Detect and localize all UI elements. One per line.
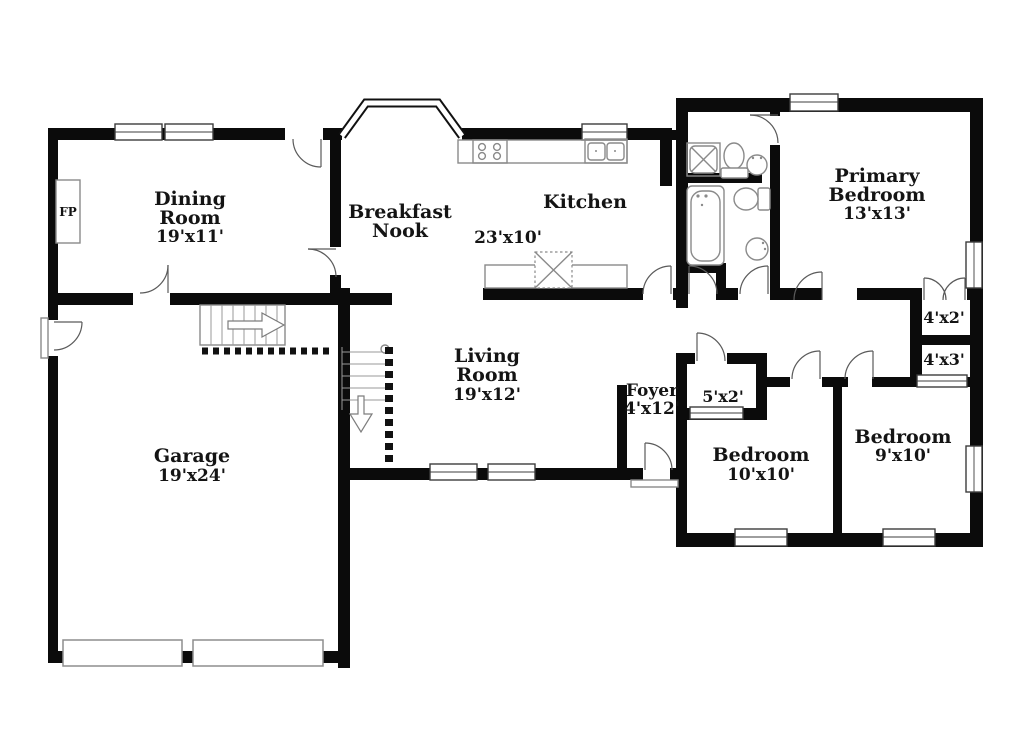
- door: [643, 266, 671, 294]
- door: [697, 333, 725, 361]
- closet-dims-4x2: 4'x2': [923, 308, 965, 327]
- bathroom-fixtures: [687, 143, 770, 265]
- door: [750, 115, 778, 143]
- stove-icon: [473, 140, 507, 163]
- window: [165, 124, 213, 140]
- room-dims-living: 19'x12': [453, 385, 521, 405]
- room-label-primary-2: Bedroom: [829, 184, 926, 206]
- side-door-threshold: [41, 318, 48, 358]
- room-label-foyer: Foyer: [626, 381, 679, 401]
- closet-dims-4x3: 4'x3': [923, 350, 965, 369]
- closet-double-door: [924, 278, 965, 300]
- stair-direction-arrow: [228, 313, 284, 337]
- kitchen-island: [535, 252, 572, 288]
- kitchen-fixtures: [458, 139, 627, 288]
- window: [115, 124, 162, 140]
- room-dims-bedroom10: 10'x10': [727, 465, 795, 485]
- garage-door: [193, 640, 323, 666]
- window: [790, 94, 838, 111]
- room-dims-primary: 13'x13': [843, 204, 911, 224]
- door: [293, 139, 321, 167]
- staircase-down: [200, 305, 332, 351]
- window: [883, 529, 935, 546]
- kitchen-sink-icon: [585, 139, 627, 163]
- room-dims-kitchen: 23'x10': [474, 228, 542, 248]
- floor-plan-page: Dining Room 19'x11' Breakfast Nook Kitch…: [0, 0, 1024, 735]
- sliding-closet-door: [917, 375, 967, 387]
- door: [308, 249, 336, 277]
- shower-icon: [687, 143, 720, 176]
- window: [966, 242, 982, 288]
- room-label-bedroom9: Bedroom: [855, 426, 952, 448]
- door: [792, 351, 820, 379]
- room-label-nook-2: Nook: [372, 220, 429, 242]
- fireplace-label: FP: [59, 205, 77, 219]
- stair-direction-arrow: [350, 396, 372, 432]
- closet-dims-5x2: 5'x2': [702, 387, 744, 406]
- toilet-icon: [721, 143, 748, 178]
- floor-plan-image: Dining Room 19'x11' Breakfast Nook Kitch…: [0, 0, 1024, 735]
- room-dims-foyer: 4'x12': [624, 399, 680, 419]
- sink-icon: [747, 155, 767, 175]
- room-dims-bedroom9: 9'x10': [875, 446, 931, 466]
- bay-window: [342, 103, 462, 136]
- toilet-icon: [734, 188, 770, 210]
- door: [140, 265, 168, 293]
- window: [966, 446, 982, 492]
- front-door-threshold: [631, 480, 678, 487]
- door: [845, 351, 873, 379]
- sink-icon: [746, 238, 768, 260]
- sliding-closet-door: [690, 407, 743, 419]
- window: [488, 464, 535, 480]
- front-door: [645, 443, 672, 470]
- door: [54, 322, 82, 350]
- room-dims-garage: 19'x24': [158, 466, 226, 486]
- door: [740, 266, 768, 294]
- room-labels: Dining Room 19'x11' Breakfast Nook Kitch…: [59, 165, 965, 486]
- window: [735, 529, 787, 546]
- room-label-dining-2: Room: [159, 207, 220, 229]
- room-label-bedroom10: Bedroom: [713, 444, 810, 466]
- window: [582, 124, 627, 140]
- garage-door: [63, 640, 182, 666]
- room-label-living-2: Room: [456, 364, 517, 386]
- room-dims-dining: 19'x11': [156, 227, 224, 247]
- window: [430, 464, 477, 480]
- room-label-garage: Garage: [154, 445, 230, 467]
- bathtub-icon: [687, 186, 724, 265]
- room-label-kitchen: Kitchen: [543, 191, 627, 213]
- garage-doors: [63, 640, 323, 666]
